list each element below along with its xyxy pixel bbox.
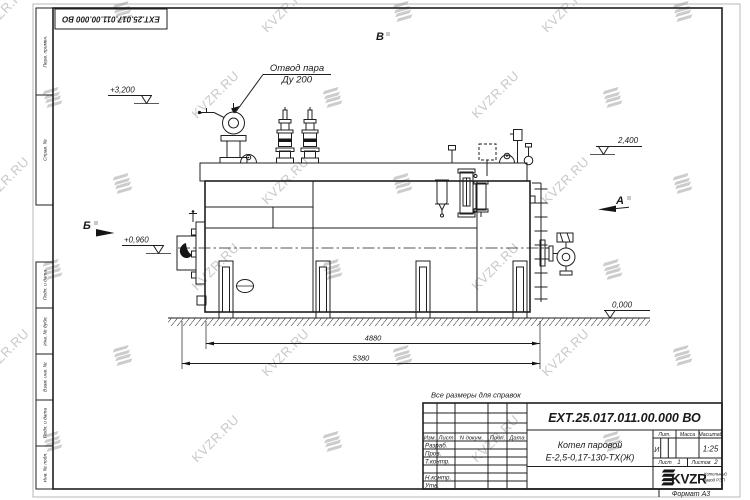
callout-line2: Ду 200 (281, 75, 313, 86)
steam-callout: Отвод пара Ду 200 (231, 63, 331, 114)
scale-value: 1:25 (703, 445, 719, 454)
view-label-a-stamp (627, 196, 631, 200)
feed-unit (540, 233, 575, 275)
sheets-value: 2 (713, 459, 718, 466)
doc-number-inverted: ЕХТ.25.017.011.00.000 ВО (61, 15, 159, 24)
view-label-v-stamp (386, 32, 390, 36)
elevation-zero: 0,000 (604, 301, 650, 319)
elevation-top-text: +3,200 (110, 86, 135, 95)
ground-line (168, 318, 650, 326)
dim-overall-text: 5380 (353, 354, 371, 363)
view-labels: Б В А (83, 31, 631, 237)
col-ndoc: N докум. (460, 436, 483, 442)
frame-label-sprav: Справ. № (43, 139, 49, 161)
row-utv: Утв. (424, 483, 439, 490)
steam-valve (198, 103, 247, 163)
view-label-b: Б (83, 220, 91, 232)
row-razrab: Разраб. (425, 443, 447, 450)
frame-label-podp2: Подп. и дата (43, 408, 49, 438)
product-name-line2: Е-2,5-0,17-130-ТХ(Ж) (546, 453, 635, 463)
col-podp: Подп. (490, 436, 505, 442)
frame-label-perv: Перв. примен. (43, 36, 49, 68)
stamp-doc-number-top: ЕХТ.25.017.011.00.000 ВО (55, 9, 167, 29)
elevation-right: 2,400 (590, 136, 642, 155)
scale-label: Масштаб (698, 432, 723, 438)
elevation-zero-text: 0,000 (612, 301, 633, 310)
view-a-arrow-icon (598, 206, 616, 213)
kvzr-logo-sub1: Котельный (704, 472, 727, 477)
burner-assembly (177, 210, 206, 305)
water-level-gauges (435, 169, 488, 217)
elevation-burner: +0,960 (122, 236, 171, 254)
lit-value: И (654, 447, 660, 454)
view-label-b-stamp (94, 221, 98, 225)
format-note: Формат А3 (672, 491, 710, 498)
frame-label-invdubl: Инв. № дубл. (43, 316, 49, 346)
row-nkontr: Н.контр. (425, 475, 451, 482)
callout-line1: Отвод пара (270, 63, 324, 74)
product-name-line1: Котел паровой (558, 440, 623, 450)
boiler-side-view (168, 103, 650, 326)
frame-label-podp1: Подп. и дата (43, 270, 49, 300)
col-list: Лист (438, 436, 454, 442)
elevation-top: +3,200 (108, 86, 159, 104)
support-legs (219, 261, 527, 318)
reference-note: Все размеры для справок (431, 391, 521, 400)
kvzr-logo-sub2: завод РЭП (703, 478, 726, 483)
view-label-v: В (376, 31, 384, 43)
elevation-marks: +3,200 +0,960 2,400 0,000 (108, 86, 650, 319)
sheet-label: Лист (657, 460, 672, 466)
mass-label: Масса (680, 432, 695, 438)
drawing-sheet: KVZR.RUKVZR.RUKVZR.RUKVZR.RUKVZR.RUKVZR.… (0, 0, 750, 500)
frame-left-columns: Перв. примен. Справ. № Подп. и дата Инв.… (36, 8, 53, 489)
col-data: Дата (508, 436, 525, 442)
frame-label-invpodl: Инв. № подл. (43, 453, 49, 483)
view-b-arrow-icon (96, 229, 115, 237)
safety-valves (276, 107, 319, 163)
view-label-a: А (615, 195, 624, 207)
titleblock-doc-number: ЕХТ.25.017.011.00.000 ВО (548, 411, 701, 425)
boiler-drawing-svg: Формат А3 Перв. примен. Справ. № Подп. и… (0, 0, 750, 500)
frame-label-vzam: Взам. инв. № (43, 362, 49, 392)
sheet-value: 1 (677, 459, 680, 466)
elevation-burner-text: +0,960 (124, 236, 149, 245)
kvzr-logo: KVZR Котельный завод РЭП (653, 470, 728, 487)
dome-fitting (239, 155, 259, 164)
title-block: Все размеры для справок (423, 391, 727, 490)
dim-inner-text: 4880 (365, 334, 383, 343)
row-tkontr: Т.контр. (425, 459, 450, 466)
kvzr-logo-text: KVZR (671, 472, 707, 487)
col-izm: Изм. (424, 436, 436, 442)
dimension-lines: 4880 5380 (182, 321, 540, 369)
lit-label: Лит. (657, 432, 670, 438)
elevation-right-text: 2,400 (617, 136, 639, 145)
row-prov: Пров. (425, 451, 441, 458)
sheets-label: Листов (691, 460, 711, 466)
